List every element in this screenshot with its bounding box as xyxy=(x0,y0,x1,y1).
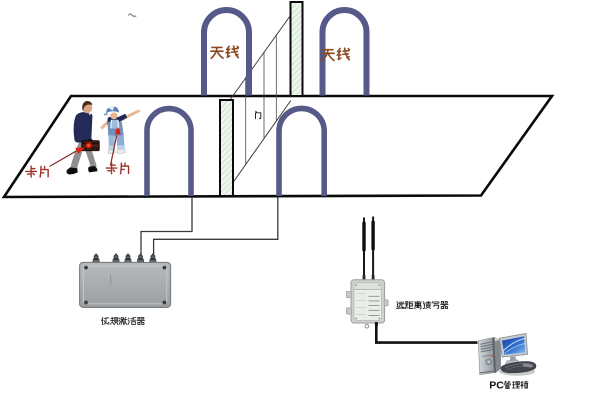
svg-text:PC: PC xyxy=(489,380,504,392)
